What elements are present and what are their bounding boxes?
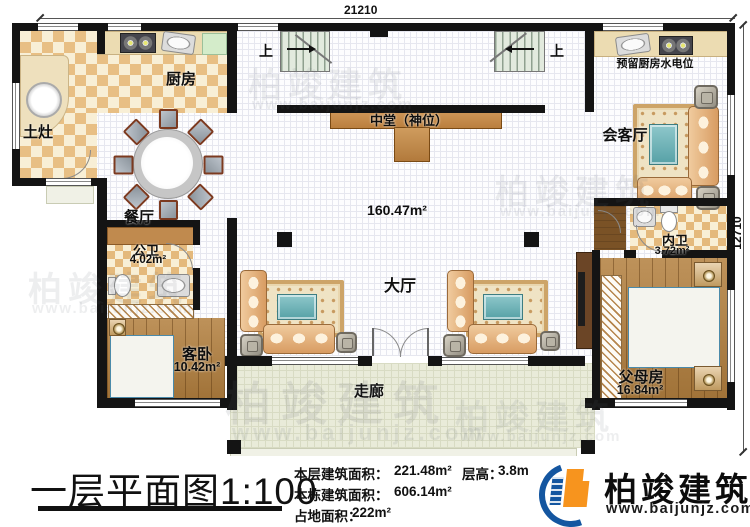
brand-logo-icon <box>538 461 596 519</box>
dimension-line-top <box>40 18 735 19</box>
window <box>272 357 358 365</box>
shrine-pedestal <box>394 127 430 162</box>
staircase-left-arrow-line <box>287 48 309 50</box>
dining-chair <box>204 156 224 175</box>
inner-bath-sink <box>633 207 656 227</box>
side-table <box>240 334 263 357</box>
wall-hall-front-b <box>358 356 372 366</box>
window <box>135 399 220 407</box>
bath-sink <box>157 274 190 297</box>
window <box>38 23 78 31</box>
earth-stove-pot <box>26 82 62 118</box>
label-central-shrine: 中堂（神位） <box>370 110 448 129</box>
nightstand <box>694 366 722 391</box>
wall-wing-right <box>227 218 237 410</box>
dining-table-top <box>141 137 193 189</box>
toilet <box>114 274 131 297</box>
label-main-hall: 大厅 <box>384 272 416 296</box>
guest-bed <box>110 335 174 398</box>
nightstand <box>694 262 722 287</box>
exterior-left <box>0 186 97 456</box>
label-dining: 餐厅 <box>124 206 154 227</box>
label-reserved-kitchen: 预留厨房水电位 <box>617 55 694 71</box>
cutting-board <box>202 33 227 55</box>
label-earth-stove: 土灶 <box>23 121 53 142</box>
wall-kitchen-right <box>227 23 237 113</box>
wall-innerbath-bottom-a <box>624 250 636 258</box>
dining-chair <box>114 156 134 175</box>
wall-wing-left <box>97 178 107 408</box>
stat-building-area-value: 606.14m² <box>394 484 452 499</box>
porch-column <box>227 440 241 454</box>
side-table <box>540 331 560 351</box>
window <box>442 357 528 365</box>
porch-column <box>581 440 595 454</box>
sofa-three-seat <box>468 324 537 354</box>
title-underline <box>38 506 282 511</box>
hall-column <box>277 232 292 247</box>
label-stairs-up-right: 上 <box>550 41 564 61</box>
label-inner-bath-area: 3.72m² <box>655 245 690 257</box>
dining-chair <box>159 200 178 220</box>
window <box>12 83 20 149</box>
inner-toilet <box>661 211 677 232</box>
sofa-corner <box>447 270 474 332</box>
nightstand <box>109 319 126 336</box>
staircase-right-arrow-line <box>512 48 534 50</box>
dimension-top: 21210 <box>344 3 377 17</box>
window <box>615 399 687 407</box>
stat-height-label: 层高： <box>462 463 503 483</box>
side-table <box>443 334 466 357</box>
reception-stove <box>659 36 693 55</box>
label-corridor: 走廊 <box>354 380 384 401</box>
staircase-right-arrowhead <box>505 45 512 53</box>
window <box>108 23 141 31</box>
sofa-three-seat <box>263 324 335 354</box>
stat-building-area-label: 本栋建筑面积： <box>294 484 389 504</box>
guest-wardrobe <box>108 304 194 319</box>
parents-bed <box>628 287 720 368</box>
wall-top-tab <box>370 31 388 37</box>
label-stairs-up-left: 上 <box>259 41 273 61</box>
wall-reception-left <box>585 23 594 112</box>
stat-height-value: 3.8m <box>498 463 529 478</box>
hall-column <box>524 232 539 247</box>
window <box>727 95 735 175</box>
coffee-table <box>483 294 523 320</box>
side-table <box>694 85 718 109</box>
wall-hall-front-c <box>428 356 442 366</box>
floor-plan-sheet: 21210 12710 <box>0 0 750 527</box>
dining-chair <box>159 109 178 129</box>
dimension-tick-bottom <box>739 448 747 456</box>
label-parents-room-area: 16.84m² <box>617 383 664 397</box>
coffee-table <box>649 124 678 165</box>
tv-screen <box>578 272 585 326</box>
stat-land-area-value: 222m² <box>352 505 391 520</box>
wall-hall-front-d <box>528 356 585 366</box>
sofa-three-seat-vertical <box>688 106 719 186</box>
label-reception: 会客厅 <box>602 124 647 145</box>
wall-publicbath-right-b <box>193 268 200 310</box>
sofa-corner <box>240 270 267 332</box>
stat-floor-area-label: 本层建筑面积： <box>294 463 389 483</box>
brand-url: www.baijunjz.com <box>606 501 750 517</box>
staircase-left <box>280 31 330 72</box>
label-guest-bedroom-area: 10.42m² <box>174 360 221 374</box>
window <box>603 23 663 31</box>
wall-hall-front-a <box>225 356 272 366</box>
window <box>46 178 91 186</box>
entry-door-left-leaf <box>372 328 374 356</box>
window <box>727 290 735 382</box>
label-kitchen: 厨房 <box>166 68 196 89</box>
dimension-tick-right <box>729 14 737 22</box>
wall-parents-left <box>592 250 600 410</box>
window <box>238 23 278 31</box>
entry-door-right-leaf <box>427 328 429 356</box>
label-public-bath-area: 4.02m² <box>130 254 166 266</box>
label-main-hall-area: 160.47m² <box>367 202 427 218</box>
wall-kitchen-stub <box>97 31 105 54</box>
dimension-right: 12710 <box>730 208 744 258</box>
staircase-left-arrowhead <box>309 45 316 53</box>
stat-floor-area-value: 221.48m² <box>394 463 452 478</box>
side-entry-step <box>46 186 94 204</box>
coffee-table <box>277 294 317 320</box>
side-table <box>336 332 357 353</box>
kitchen-stove <box>120 33 156 53</box>
corridor-floor <box>230 363 595 448</box>
wall-innerbath-top <box>594 198 735 206</box>
wall-publicbath-right-a <box>193 227 200 245</box>
